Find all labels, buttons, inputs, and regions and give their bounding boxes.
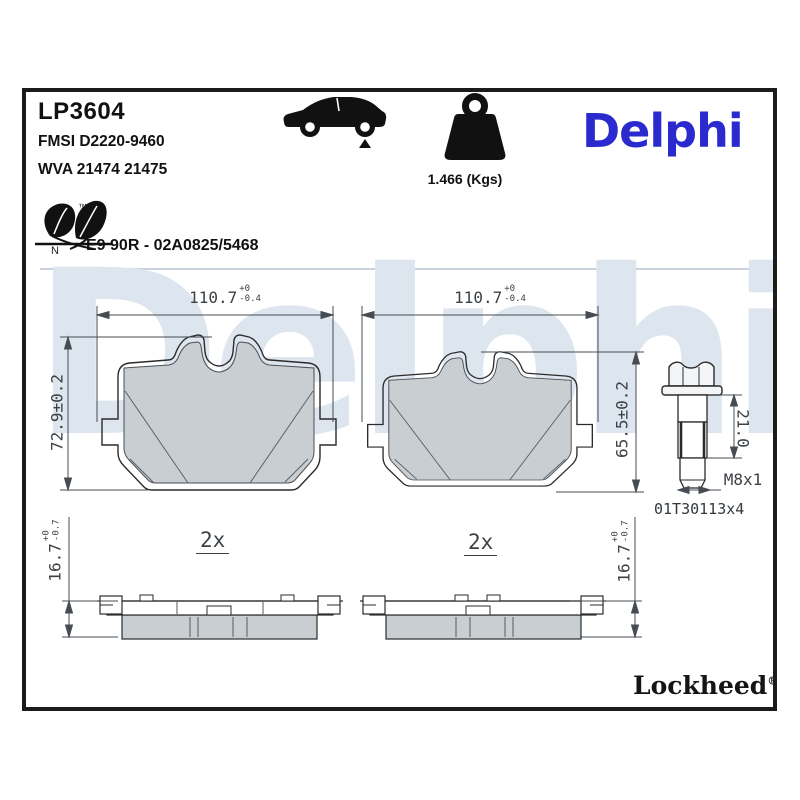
dim-bolt-thread: M8x1 [708, 470, 777, 489]
qty-label-right: 2x [464, 530, 497, 556]
qty-label-left: 2x [196, 528, 229, 554]
dimension-overlay [26, 92, 773, 707]
dim-pad-left-height: 72.9±0.2 [48, 368, 67, 458]
dim-side-right-thickness: 16.7+0-0.7 [615, 512, 634, 592]
dim-bolt-length: 21.0 [734, 399, 753, 459]
bolt-part-code: 01T30113x4 [654, 500, 744, 518]
datasheet-page: LP3604 FMSI D2220-9460 WVA 21474 21475 1… [0, 0, 800, 800]
dim-pad-right-width: 110.7+0-0.4 [435, 288, 545, 307]
dim-pad-left-width: 110.7+0-0.4 [170, 288, 280, 307]
dim-pad-right-height: 65.5±0.2 [613, 375, 632, 465]
registered-symbol: ® [767, 675, 777, 688]
dim-side-left-thickness: 16.7+0-0.7 [46, 511, 65, 591]
lockheed-logo: Lockheed® [633, 671, 777, 700]
drawing-frame: LP3604 FMSI D2220-9460 WVA 21474 21475 1… [22, 88, 777, 711]
